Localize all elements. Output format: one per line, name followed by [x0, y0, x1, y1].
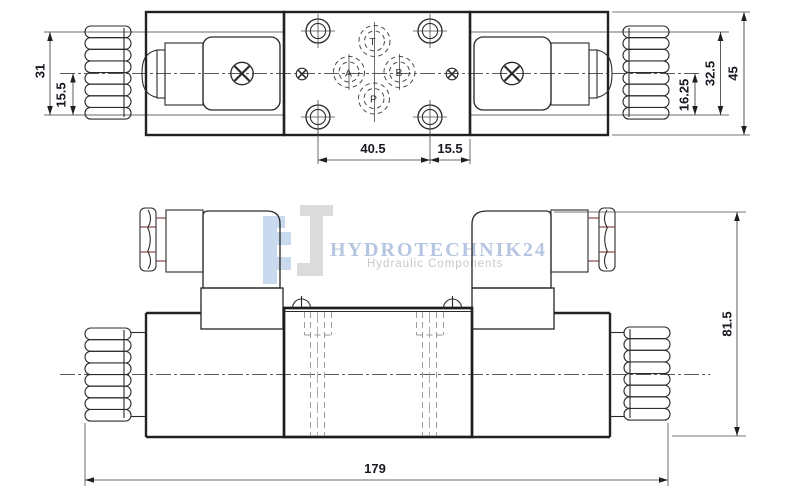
right-plug-body [551, 210, 588, 272]
right-cable-gland [599, 208, 615, 271]
right-solenoid-cap-top-view [623, 26, 669, 119]
top-view: T A B P 31 [33, 12, 751, 164]
mounting-hole-top-right [413, 14, 447, 48]
dim-label-16-25: 16.25 [677, 79, 692, 112]
left-hidden-bolt-hole [305, 312, 332, 436]
mounting-hole-top-left [301, 14, 335, 48]
dim-label-40-5: 40.5 [360, 141, 385, 156]
port-b-label: B [395, 67, 402, 79]
right-solenoid-cap-side-view [624, 327, 670, 420]
dimension-32-5: 32.5 [703, 32, 724, 115]
right-screw-head [444, 296, 462, 308]
left-din-connector-side-view [140, 208, 283, 329]
right-coil-block [472, 288, 554, 329]
valve-technical-drawing: HYDROTECHNIK24 Hydraulic Components [0, 0, 800, 494]
port-p-label: P [370, 94, 377, 106]
dim-label-81-5: 81.5 [720, 311, 735, 336]
left-cable-gland [140, 208, 156, 271]
dimension-16-25: 16.25 [677, 74, 698, 116]
dimension-15-5-bottom: 15.5 [430, 139, 470, 164]
port-a-label: A [345, 68, 352, 80]
right-hidden-bolt-hole [417, 312, 444, 436]
port-t-label: T [369, 36, 376, 48]
body-screw-left-icon [296, 68, 308, 80]
valve-body-side-view [284, 296, 472, 437]
left-solenoid-housing-side-view [146, 313, 284, 437]
dimension-179: 179 [85, 423, 668, 486]
dimension-40-5: 40.5 [318, 125, 430, 164]
dimension-31: 31 [33, 32, 53, 115]
dim-label-45: 45 [726, 66, 741, 80]
watermark: HYDROTECHNIK24 Hydraulic Components [263, 205, 547, 284]
right-solenoid-housing-side-view [472, 313, 610, 437]
right-solenoid-housing-top-view [470, 12, 608, 135]
dim-label-31: 31 [33, 64, 48, 78]
left-coil-block [201, 288, 283, 329]
dimension-15-5-left: 15.5 [54, 74, 76, 116]
left-solenoid-cap-top-view [85, 26, 131, 119]
dim-label-179: 179 [364, 461, 386, 476]
body-screw-right-icon [446, 68, 458, 80]
dimension-81-5: 81.5 [554, 212, 746, 436]
brand-logo [263, 205, 333, 284]
dim-label-32-5: 32.5 [703, 61, 718, 86]
technical-drawing-page: HYDROTECHNIK24 Hydraulic Components [0, 0, 800, 494]
dim-label-15-5-bottom: 15.5 [437, 141, 462, 156]
brand-tagline: Hydraulic Components [367, 258, 503, 270]
left-screw-head [293, 296, 311, 308]
left-solenoid-cap-side-view [85, 328, 131, 421]
left-plug-body [166, 210, 203, 272]
dim-label-15-5-left: 15.5 [54, 82, 69, 107]
